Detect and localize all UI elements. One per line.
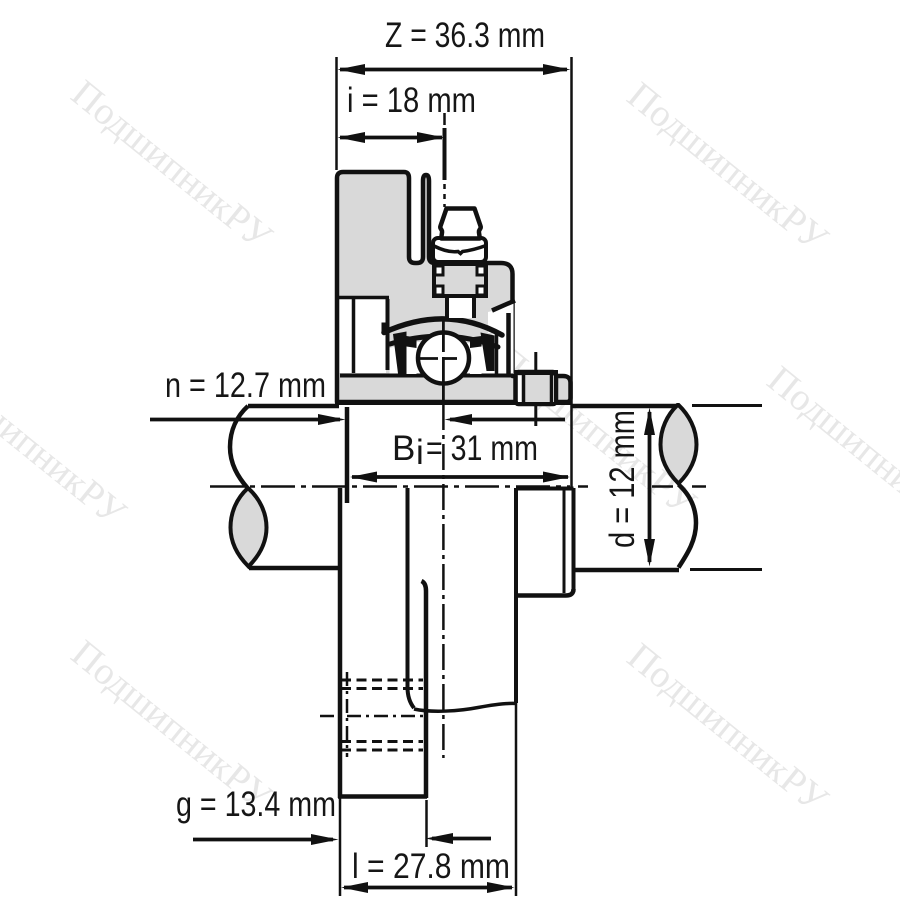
svg-text:d = 12 mm: d = 12 mm [603, 410, 642, 548]
svg-text:Z = 36.3 mm: Z = 36.3 mm [385, 16, 545, 55]
svg-text:= 31 mm: = 31 mm [426, 429, 538, 468]
svg-text:ПодшипникРУ: ПодшипникРУ [759, 358, 900, 545]
svg-text:ПодшипникРУ: ПодшипникРУ [63, 72, 280, 259]
svg-text:ПодшипникРУ: ПодшипникРУ [619, 635, 836, 822]
svg-text:i: i [416, 433, 424, 472]
svg-text:i = 18 mm: i = 18 mm [347, 81, 476, 120]
svg-text:g = 13.4 mm: g = 13.4 mm [176, 785, 336, 824]
svg-text:n = 12.7 mm: n = 12.7 mm [165, 366, 326, 405]
svg-text:ПодшипникРУ: ПодшипникРУ [619, 74, 836, 261]
svg-text:ПодшипникРУ: ПодшипникРУ [0, 348, 134, 535]
svg-text:B: B [392, 429, 415, 468]
svg-text:l = 27.8 mm: l = 27.8 mm [352, 847, 510, 886]
